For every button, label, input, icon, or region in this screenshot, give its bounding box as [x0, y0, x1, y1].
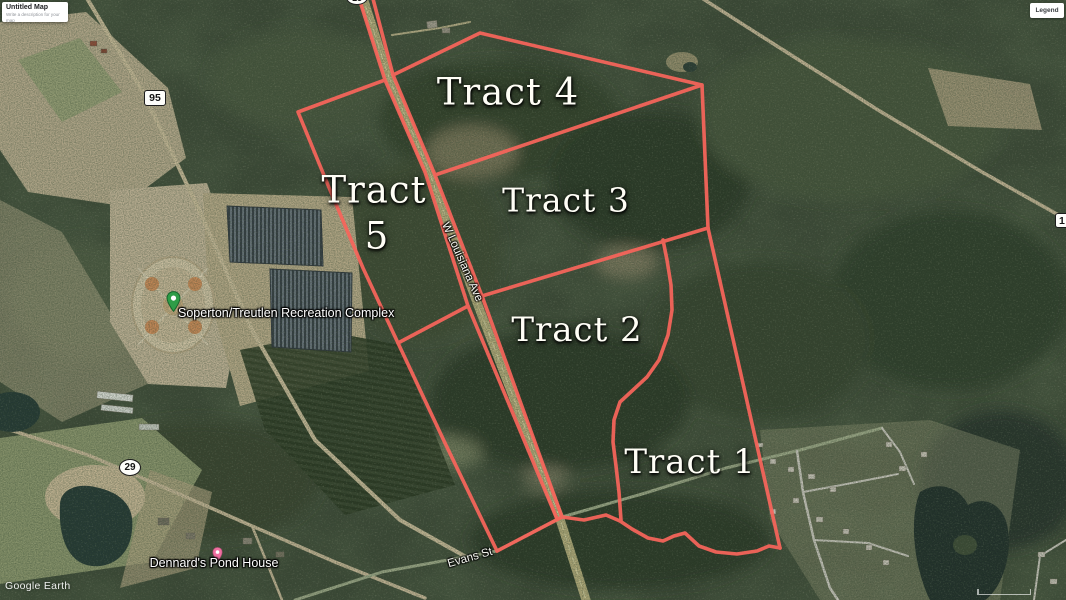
recreation-complex-label: Soperton/Treutlen Recreation Complex [178, 306, 394, 320]
tract-2-label: Tract 2 [511, 310, 642, 350]
tract-5-label-number: 5 [365, 215, 390, 258]
map-title[interactable]: Untitled Map [6, 4, 64, 12]
map-description-placeholder[interactable]: Write a description for your map [6, 12, 64, 22]
scale-bar [977, 589, 1031, 595]
route-shield-right-partial: 1 [1055, 213, 1066, 228]
dennards-pond-house-label: Dennard's Pond House [150, 556, 279, 570]
map-info-card[interactable]: Untitled Map Write a description for you… [2, 2, 68, 22]
tract-1-label: Tract 1 [624, 442, 755, 482]
route-95-shield: 95 [144, 90, 166, 106]
tract-3-label: Tract 3 [502, 181, 630, 220]
tract-4-label: Tract 4 [437, 71, 579, 114]
google-earth-viewport[interactable]: Tract 4 Tract 3 Tract 5 Tract 2 Tract 1 … [0, 0, 1066, 600]
tract-5-label-word: Tract [321, 169, 426, 212]
legend-button[interactable]: Legend [1030, 3, 1064, 18]
route-29-shield: 29 [119, 459, 141, 476]
google-earth-watermark: Google Earth [5, 580, 70, 592]
